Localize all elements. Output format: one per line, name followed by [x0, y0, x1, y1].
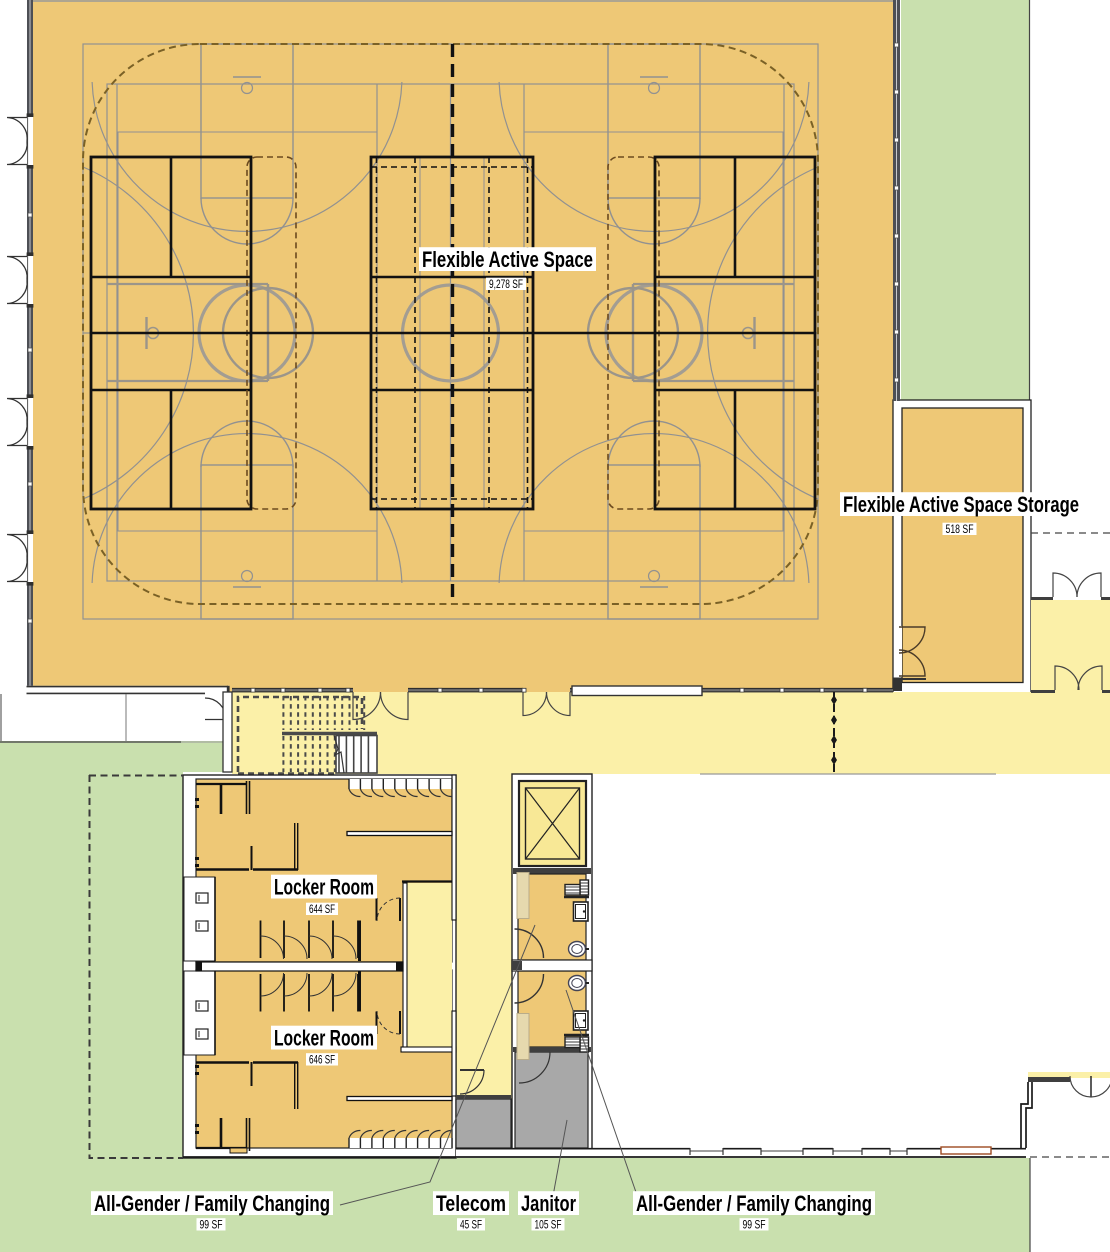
svg-text:Janitor: Janitor	[521, 1191, 576, 1216]
svg-text:45 SF: 45 SF	[460, 1220, 482, 1232]
svg-text:105 SF: 105 SF	[535, 1220, 562, 1232]
svg-text:Flexible Active Space: Flexible Active Space	[422, 247, 593, 272]
svg-text:9,278 SF: 9,278 SF	[489, 279, 523, 291]
svg-text:Telecom: Telecom	[436, 1191, 506, 1216]
svg-text:518 SF: 518 SF	[946, 524, 974, 536]
svg-text:All-Gender / Family Changing: All-Gender / Family Changing	[94, 1191, 330, 1216]
svg-text:All-Gender / Family Changing: All-Gender / Family Changing	[636, 1191, 872, 1216]
svg-text:99 SF: 99 SF	[743, 1220, 766, 1232]
svg-text:Locker Room: Locker Room	[274, 1026, 374, 1051]
svg-text:99 SF: 99 SF	[200, 1220, 223, 1232]
svg-text:644 SF: 644 SF	[309, 904, 335, 916]
svg-text:Flexible Active Space Storage: Flexible Active Space Storage	[843, 492, 1079, 517]
svg-text:Locker Room: Locker Room	[274, 875, 374, 900]
svg-text:646 SF: 646 SF	[309, 1055, 335, 1067]
